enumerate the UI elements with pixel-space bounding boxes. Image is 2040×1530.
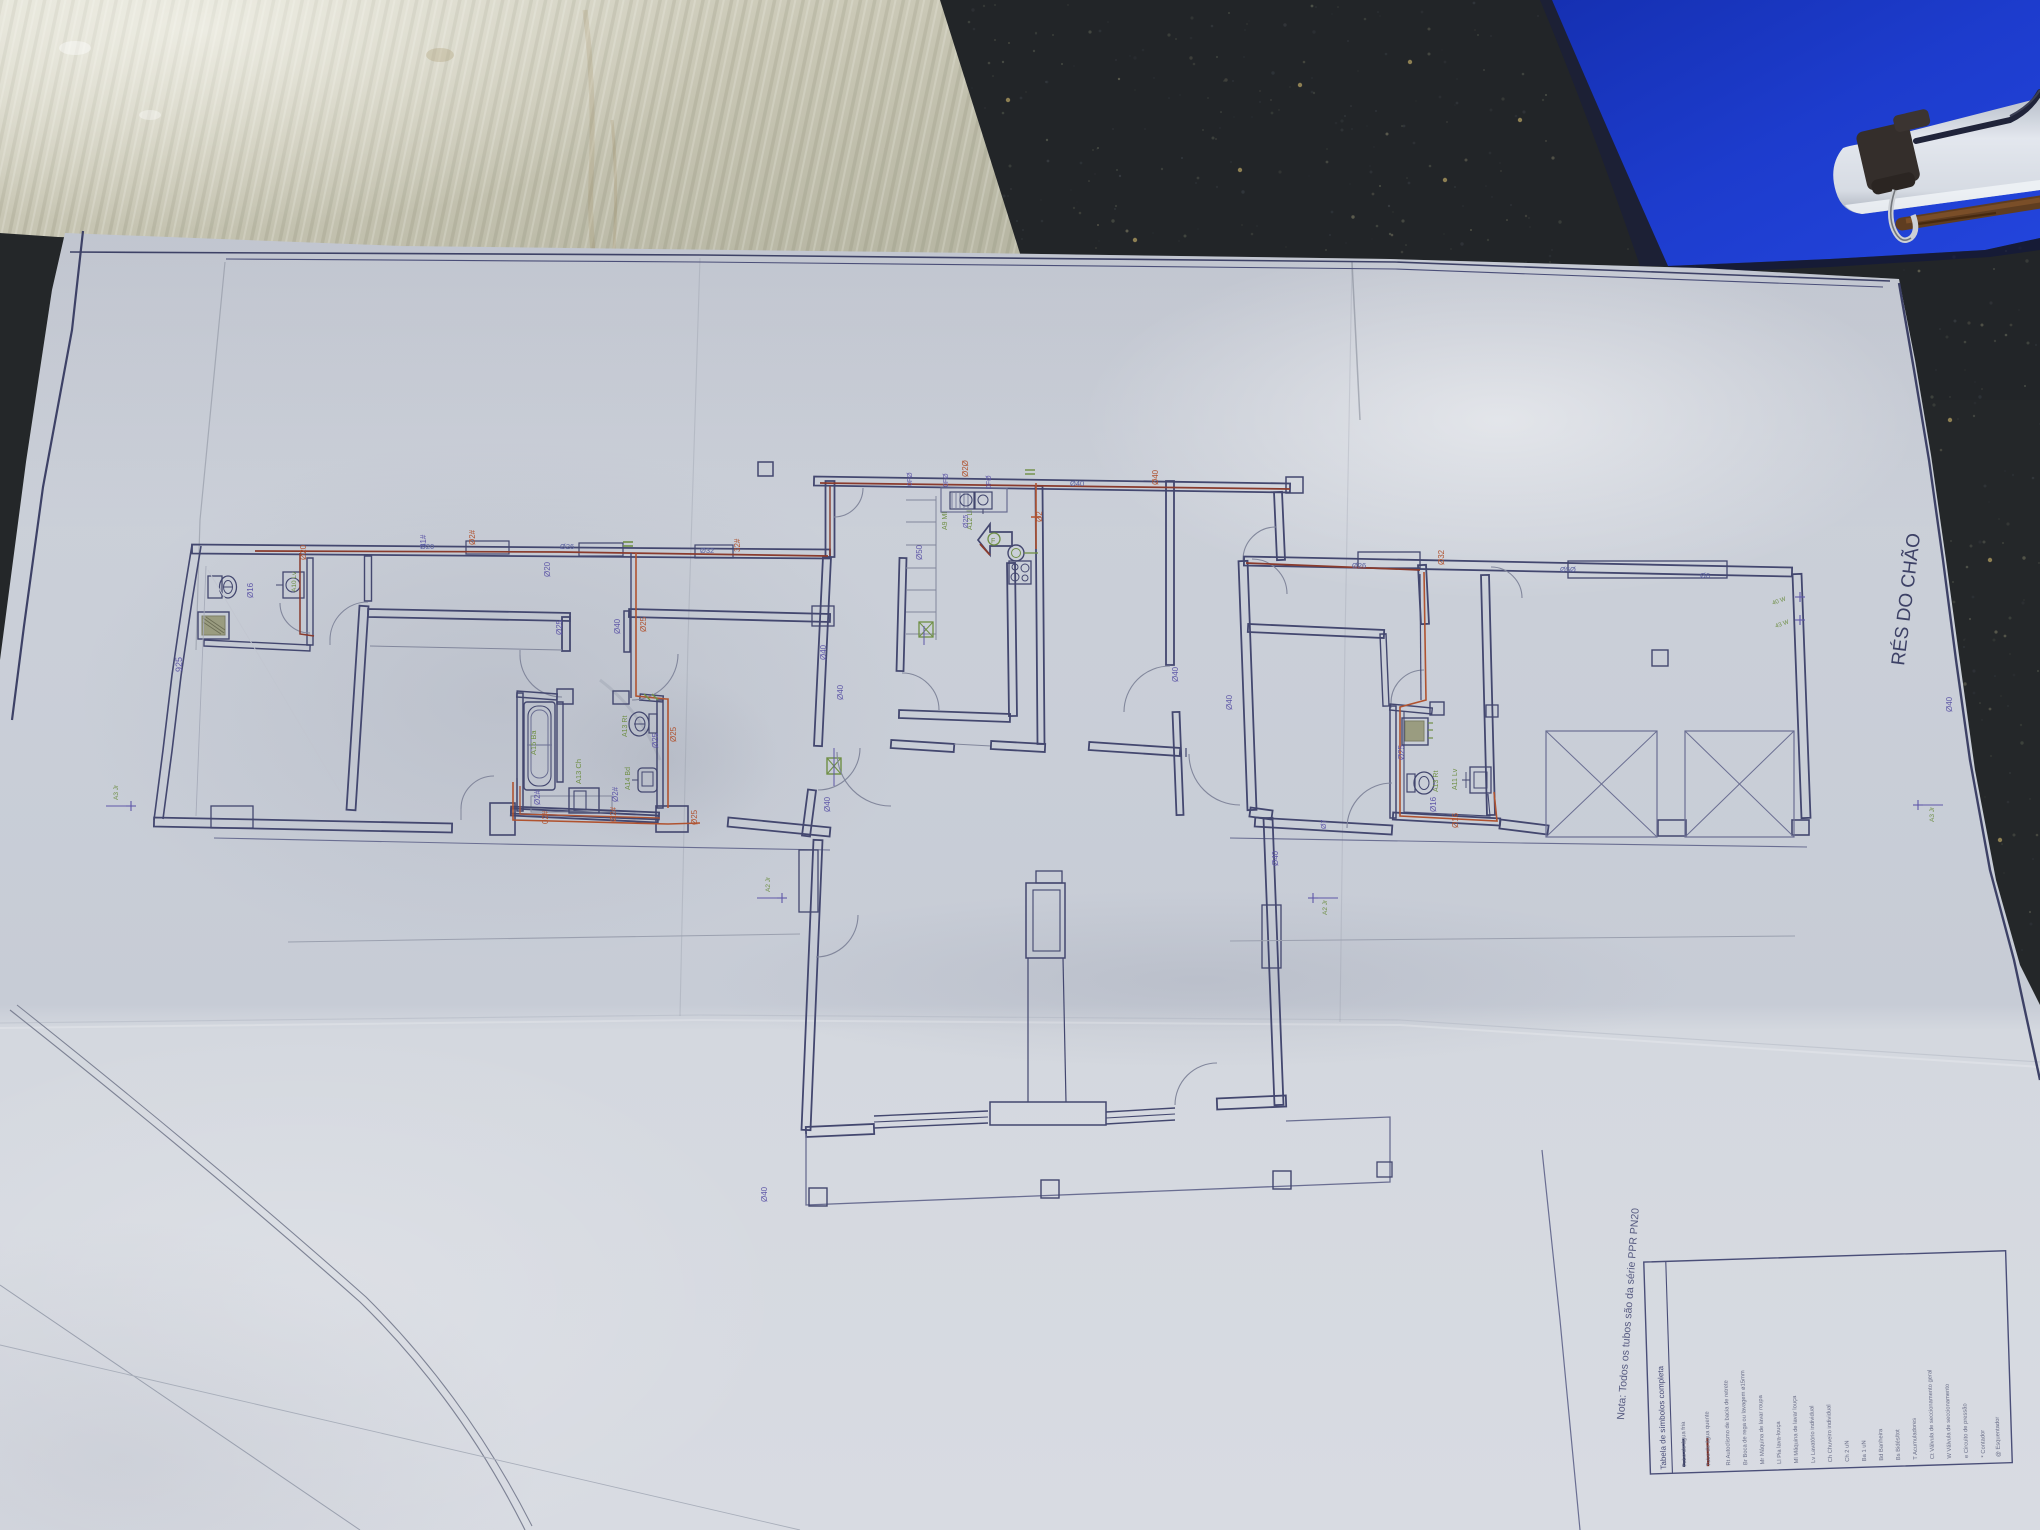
svg-text:Ø40: Ø40 (1271, 850, 1280, 866)
svg-text:Ø26: Ø26 (560, 542, 574, 551)
svg-text:Ø2#: Ø2# (533, 789, 542, 805)
svg-text:Ø25: Ø25 (963, 515, 970, 528)
svg-text:Ø16: Ø16 (246, 582, 255, 598)
svg-text:Ø20: Ø20 (543, 561, 552, 577)
svg-text:Bs Bidés/tot: Bs Bidés/tot (1895, 1429, 1902, 1460)
svg-text:A13 Rt: A13 Rt (622, 716, 629, 737)
svg-text:Bd Banheira: Bd Banheira (1878, 1428, 1885, 1461)
svg-text:Ø40: Ø40 (1171, 666, 1180, 682)
svg-text:Ø2#: Ø2# (609, 806, 618, 822)
svg-text:A9 Ml: A9 Ml (942, 512, 949, 530)
svg-text:Ø40: Ø40 (1151, 469, 1160, 485)
svg-text:Ø20: Ø20 (420, 542, 434, 551)
svg-text:Ø50: Ø50 (915, 544, 924, 560)
svg-text:A2 Jr: A2 Jr (1322, 899, 1329, 915)
svg-text:Ø5Ø: Ø5Ø (1560, 565, 1576, 574)
svg-text:Ø25: Ø25 (555, 619, 564, 635)
svg-text:A3 Jr: A3 Jr (1929, 806, 1936, 822)
svg-text:Ø32: Ø32 (1437, 549, 1446, 565)
svg-text:0FØ: 0FØ (907, 472, 914, 486)
svg-text:A11 Lv: A11 Lv (1452, 768, 1459, 790)
svg-text:F: F (991, 538, 995, 545)
svg-text:Ø16: Ø16 (1429, 796, 1438, 812)
svg-text:Ø40: Ø40 (1945, 696, 1954, 712)
svg-text:02#: 02# (541, 810, 550, 824)
svg-text:Ø25: Ø25 (651, 732, 660, 748)
svg-text:Ø25: Ø25 (1397, 744, 1406, 760)
svg-text:Ø2#: Ø2# (611, 786, 620, 802)
svg-text:Ø2#: Ø2# (468, 529, 477, 545)
svg-text:Ch 2 uN: Ch 2 uN (1844, 1440, 1851, 1461)
svg-text:Ø26: Ø26 (1352, 561, 1366, 570)
svg-text:Ø2Ø: Ø2Ø (961, 460, 970, 477)
svg-text:0FØ: 0FØ (986, 475, 993, 489)
svg-text:0FØ: 0FØ (943, 473, 950, 487)
svg-text:Ø16: Ø16 (1451, 812, 1460, 828)
svg-text:Ba 1 uN: Ba 1 uN (1861, 1440, 1868, 1461)
svg-text:Ø40: Ø40 (823, 796, 832, 812)
svg-text:Ø40: Ø40 (1225, 694, 1234, 710)
svg-text:A14 Bd: A14 Bd (625, 767, 632, 790)
svg-text:Ø20: Ø20 (299, 544, 308, 560)
svg-text:Ø32: Ø32 (700, 546, 714, 555)
svg-text:* Contador: * Contador (1980, 1430, 1987, 1458)
svg-text:A3 Jr: A3 Jr (113, 784, 120, 800)
svg-text:A13 Rt: A13 Rt (1433, 771, 1440, 792)
svg-text:@ Esquentador: @ Esquentador (1995, 1417, 2002, 1458)
svg-text:925: 925 (174, 657, 184, 672)
svg-text:32#: 32# (733, 538, 742, 552)
svg-text:Ø40: Ø40 (819, 644, 828, 660)
svg-text:Ø25: Ø25 (669, 726, 678, 742)
svg-text:A10 Lv: A10 Lv (291, 571, 298, 592)
svg-text:Ø40: Ø40 (760, 1186, 769, 1202)
svg-text:Ø40: Ø40 (836, 684, 845, 700)
svg-text:Ø25: Ø25 (639, 616, 648, 632)
svg-text:Ø40: Ø40 (613, 618, 622, 634)
svg-text:A13 Ch: A13 Ch (574, 759, 583, 784)
svg-text:Ø6: Ø6 (1700, 571, 1710, 580)
svg-text:Ø40: Ø40 (1070, 479, 1084, 488)
svg-text:Ø2: Ø2 (1035, 511, 1044, 522)
svg-text:A15 Ba: A15 Ba (529, 730, 538, 755)
svg-text:A2 Jr: A2 Jr (765, 876, 772, 892)
svg-text:Ø25: Ø25 (690, 809, 699, 825)
svg-text:Ø7: Ø7 (1321, 820, 1328, 829)
